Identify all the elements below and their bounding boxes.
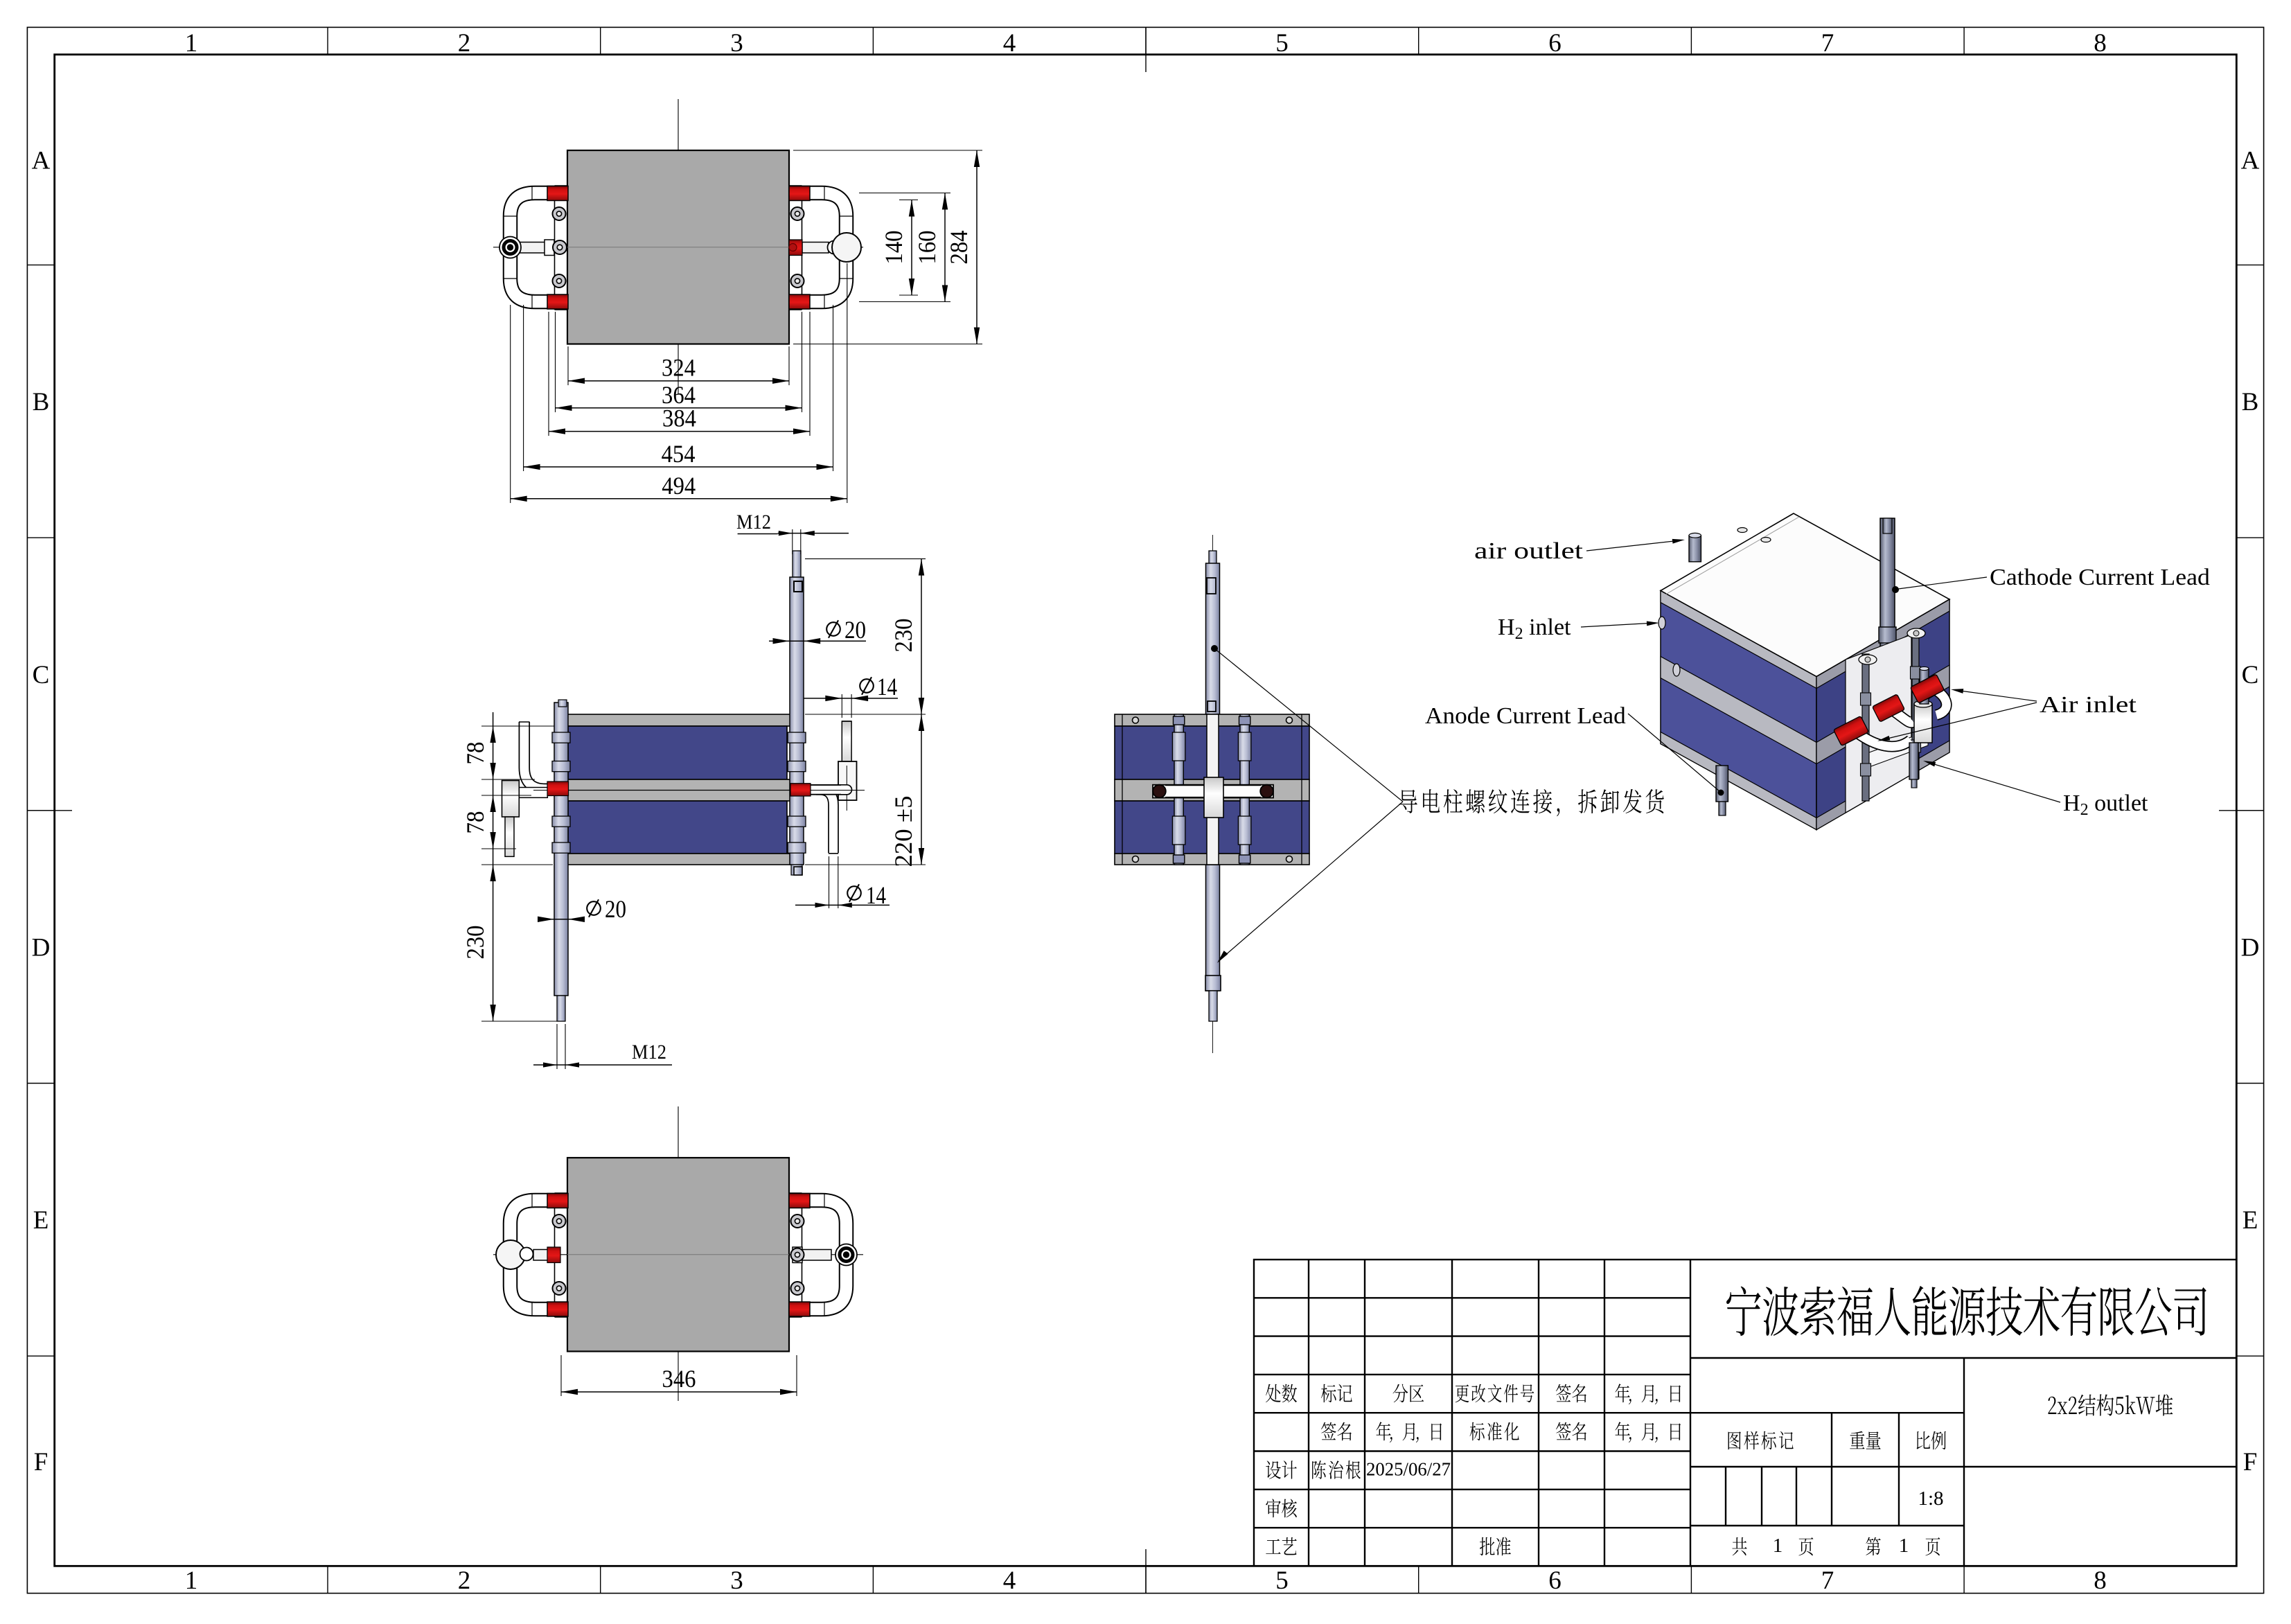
svg-text:A: A xyxy=(32,147,51,175)
svg-text:C: C xyxy=(33,661,50,689)
svg-text:6: 6 xyxy=(1548,1566,1562,1595)
svg-text:8: 8 xyxy=(2094,29,2107,58)
svg-text:2: 2 xyxy=(458,1566,471,1595)
svg-text:140: 140 xyxy=(881,231,908,265)
svg-text:284: 284 xyxy=(946,231,973,265)
svg-text:H2 inlet: H2 inlet xyxy=(1498,615,1571,643)
svg-text:5: 5 xyxy=(1275,29,1289,58)
svg-text:5: 5 xyxy=(1275,1566,1289,1595)
svg-text:1:8: 1:8 xyxy=(1918,1488,1943,1510)
svg-text:F: F xyxy=(2243,1448,2258,1476)
svg-text:A: A xyxy=(2241,147,2260,175)
svg-text:6: 6 xyxy=(1548,29,1562,58)
svg-text:230: 230 xyxy=(462,926,490,960)
svg-text:14: 14 xyxy=(866,882,886,910)
svg-text:1: 1 xyxy=(185,1566,198,1595)
svg-text:20: 20 xyxy=(605,896,626,924)
svg-text:D: D xyxy=(2241,934,2260,962)
svg-text:384: 384 xyxy=(662,405,696,432)
svg-text:20: 20 xyxy=(844,617,866,644)
svg-text:1: 1 xyxy=(1899,1535,1909,1557)
svg-text:324: 324 xyxy=(662,354,696,382)
svg-text:454: 454 xyxy=(662,440,696,468)
svg-text:78: 78 xyxy=(462,742,490,765)
svg-text:air outlet: air outlet xyxy=(1474,538,1583,564)
svg-text:M12: M12 xyxy=(736,511,771,534)
svg-text:4: 4 xyxy=(1003,29,1016,58)
svg-text:4: 4 xyxy=(1003,1566,1016,1595)
svg-text:1: 1 xyxy=(185,29,198,58)
svg-text:7: 7 xyxy=(1821,29,1834,58)
svg-text:H2 outlet: H2 outlet xyxy=(2063,791,2148,819)
svg-text:D: D xyxy=(32,934,51,962)
svg-text:78: 78 xyxy=(462,811,490,834)
svg-text:C: C xyxy=(2242,661,2259,689)
svg-text:Anode Current Lead: Anode Current Lead xyxy=(1425,703,1626,729)
svg-text:2025/06/27: 2025/06/27 xyxy=(1366,1458,1451,1479)
svg-text:160: 160 xyxy=(914,231,941,265)
svg-text:E: E xyxy=(2243,1206,2258,1235)
svg-text:B: B xyxy=(33,388,50,416)
svg-text:E: E xyxy=(33,1206,49,1235)
svg-text:230: 230 xyxy=(890,619,918,653)
svg-text:M12: M12 xyxy=(632,1041,666,1064)
svg-text:Air inlet: Air inlet xyxy=(2040,691,2137,718)
svg-text:346: 346 xyxy=(662,1366,696,1393)
svg-text:3: 3 xyxy=(730,1566,743,1595)
svg-text:7: 7 xyxy=(1821,1566,1834,1595)
svg-text:8: 8 xyxy=(2094,1566,2107,1595)
svg-text:14: 14 xyxy=(877,673,897,701)
svg-text:220 ±5: 220 ±5 xyxy=(890,796,917,867)
svg-text:1: 1 xyxy=(1773,1535,1783,1557)
svg-text:3: 3 xyxy=(730,29,743,58)
svg-text:Cathode Current Lead: Cathode Current Lead xyxy=(1990,564,2210,590)
svg-text:494: 494 xyxy=(662,472,696,500)
svg-text:2: 2 xyxy=(458,29,471,58)
svg-text:F: F xyxy=(34,1448,48,1476)
svg-text:B: B xyxy=(2242,388,2259,416)
